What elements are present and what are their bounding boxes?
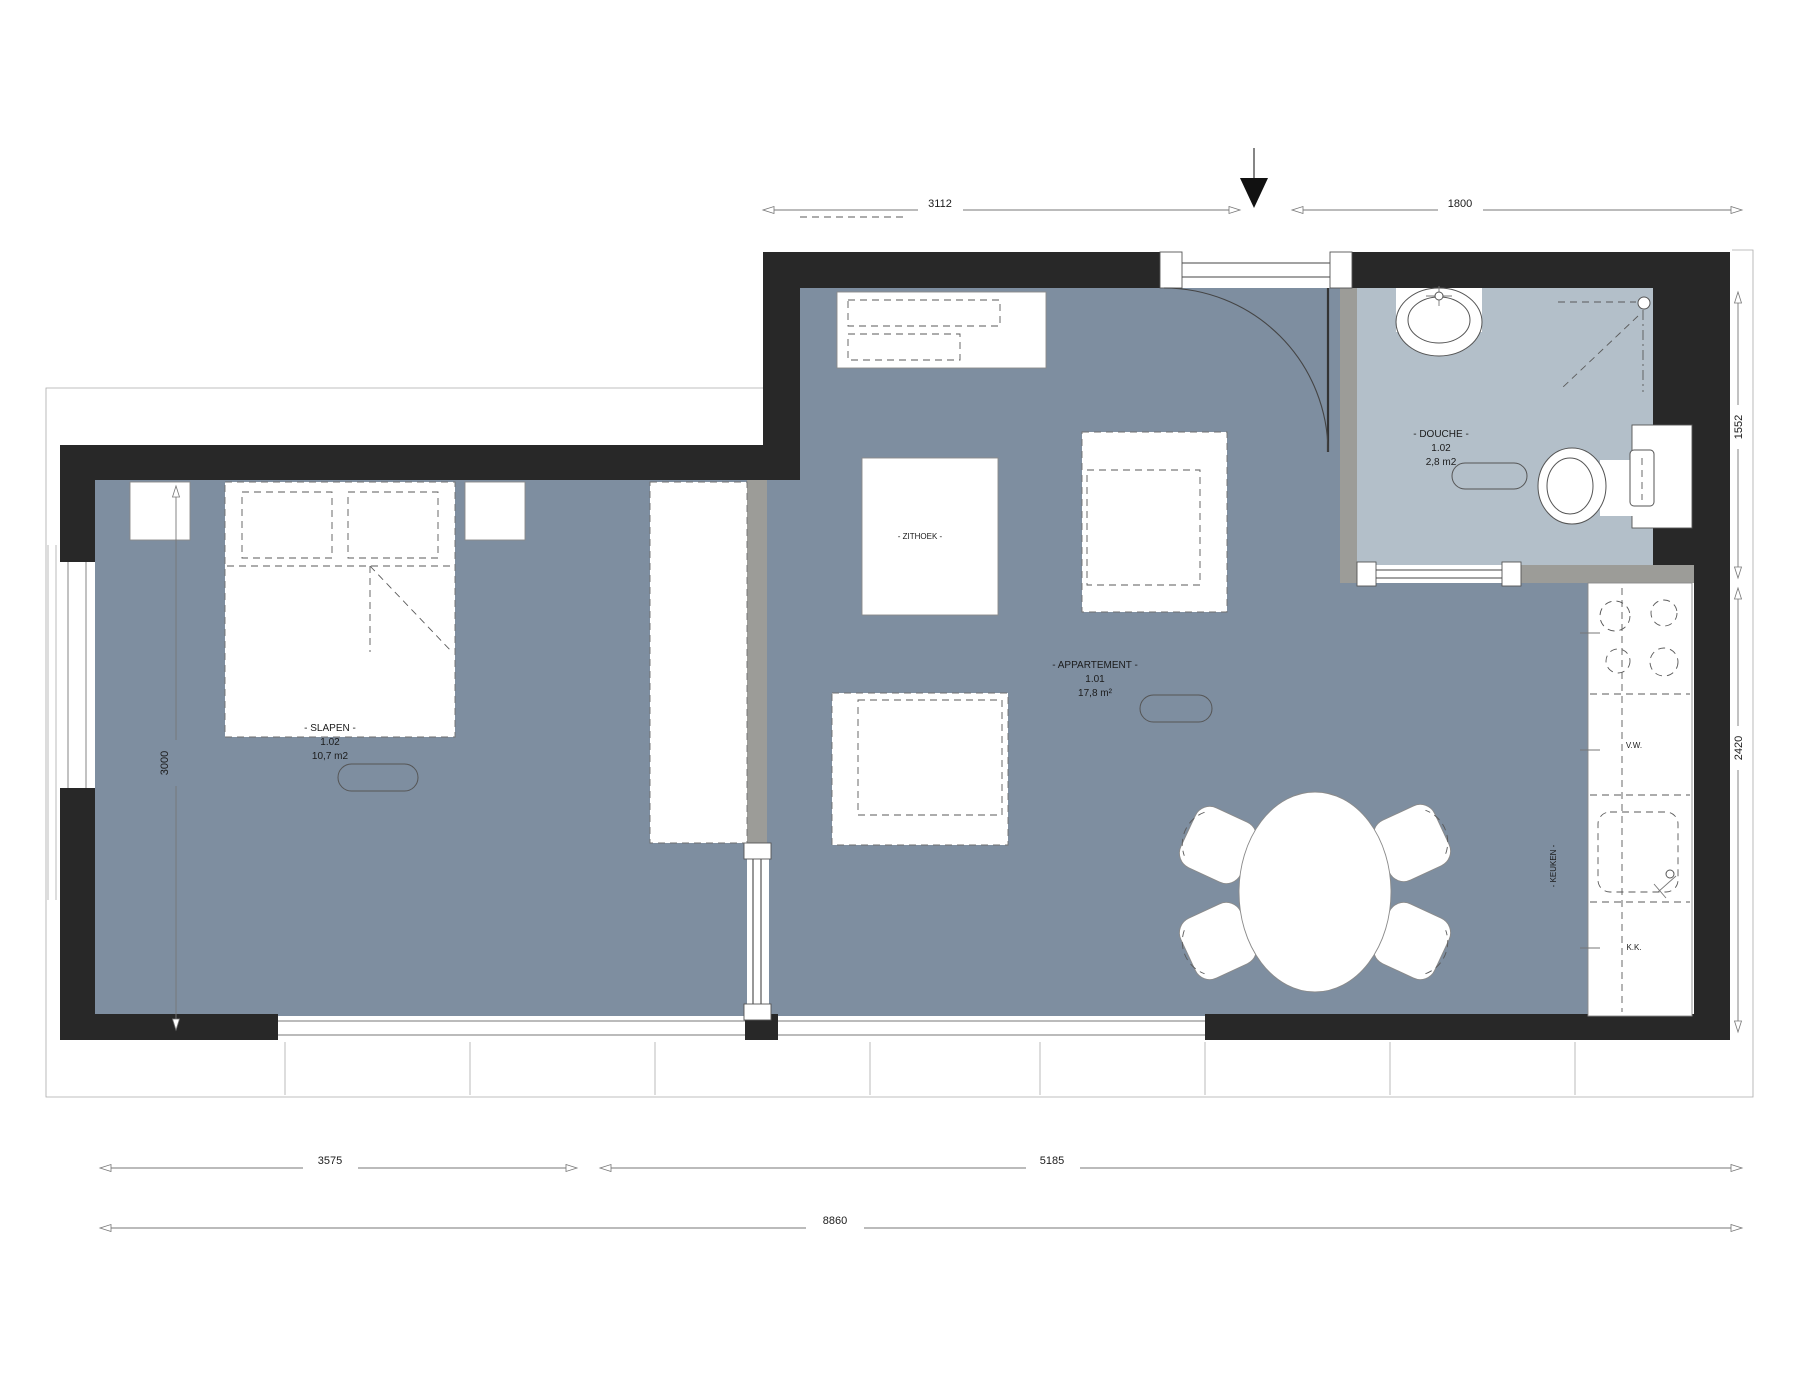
side-table-upper xyxy=(1082,432,1227,612)
dim-bottom-left: 3575 xyxy=(318,1155,342,1167)
dishwasher-label: V.W. xyxy=(1626,741,1642,750)
south-wall-sw xyxy=(60,1014,278,1040)
floor-plan-canvas: - SLAPEN - 1.02 10,7 m2 - APPARTEMENT - … xyxy=(0,0,1800,1376)
shower-west-wall xyxy=(1340,288,1357,583)
east-wall xyxy=(1694,252,1730,1040)
apartment-number: 1.01 xyxy=(1085,674,1105,685)
dim-right-upper: 1552 xyxy=(1733,415,1745,439)
interior-glass-door xyxy=(744,843,771,1020)
north-wall-living xyxy=(763,252,1160,288)
dim-left: 3000 xyxy=(159,751,171,775)
bedroom-north-wall xyxy=(60,445,800,480)
north-wall-shower xyxy=(1352,252,1730,288)
wardrobe xyxy=(650,482,747,843)
bedroom-name: - SLAPEN - xyxy=(304,723,356,734)
sideboard xyxy=(837,292,1046,368)
south-window-right xyxy=(778,1016,1205,1040)
washbasin xyxy=(1396,286,1482,356)
fridge-label: K.K. xyxy=(1626,943,1641,952)
apartment-name: - APPARTEMENT - xyxy=(1052,660,1138,671)
bedroom-partition-wall xyxy=(747,480,767,843)
floor-plan-page: - SLAPEN - 1.02 10,7 m2 - APPARTEMENT - … xyxy=(0,0,1800,1376)
dim-bottom-total: 8860 xyxy=(823,1215,847,1227)
south-window-left xyxy=(278,1016,745,1040)
entrance-arrow xyxy=(1240,148,1268,208)
side-table-lower xyxy=(832,693,1008,845)
nightstand-right xyxy=(465,482,525,540)
nightstand-left xyxy=(130,482,190,540)
kitchen-label: - KEUKEN - xyxy=(1549,844,1558,887)
shower-head xyxy=(1638,297,1650,309)
dining-table xyxy=(1239,792,1391,992)
south-wall-se xyxy=(1205,1014,1730,1040)
apartment-area: 17,8 m² xyxy=(1078,688,1113,699)
faucet xyxy=(1666,870,1674,878)
dim-right-lower: 2420 xyxy=(1733,736,1745,760)
dim-top-right: 1800 xyxy=(1448,198,1472,210)
west-window xyxy=(60,562,95,788)
seating-label: - ZITHOEK - xyxy=(898,532,943,541)
bedroom-number: 1.02 xyxy=(320,737,340,748)
shower-name: - DOUCHE - xyxy=(1413,429,1469,440)
shower-sliding-door xyxy=(1357,562,1521,586)
bed xyxy=(225,482,455,737)
shower-number: 1.02 xyxy=(1431,443,1451,454)
west-wall-upper xyxy=(60,445,95,562)
bedroom-area: 10,7 m2 xyxy=(312,751,349,762)
shower-area: 2,8 m2 xyxy=(1426,457,1457,468)
dim-top-left: 3112 xyxy=(928,198,952,210)
west-wall-lower xyxy=(60,788,95,1040)
dim-bottom-right: 5185 xyxy=(1040,1155,1064,1167)
